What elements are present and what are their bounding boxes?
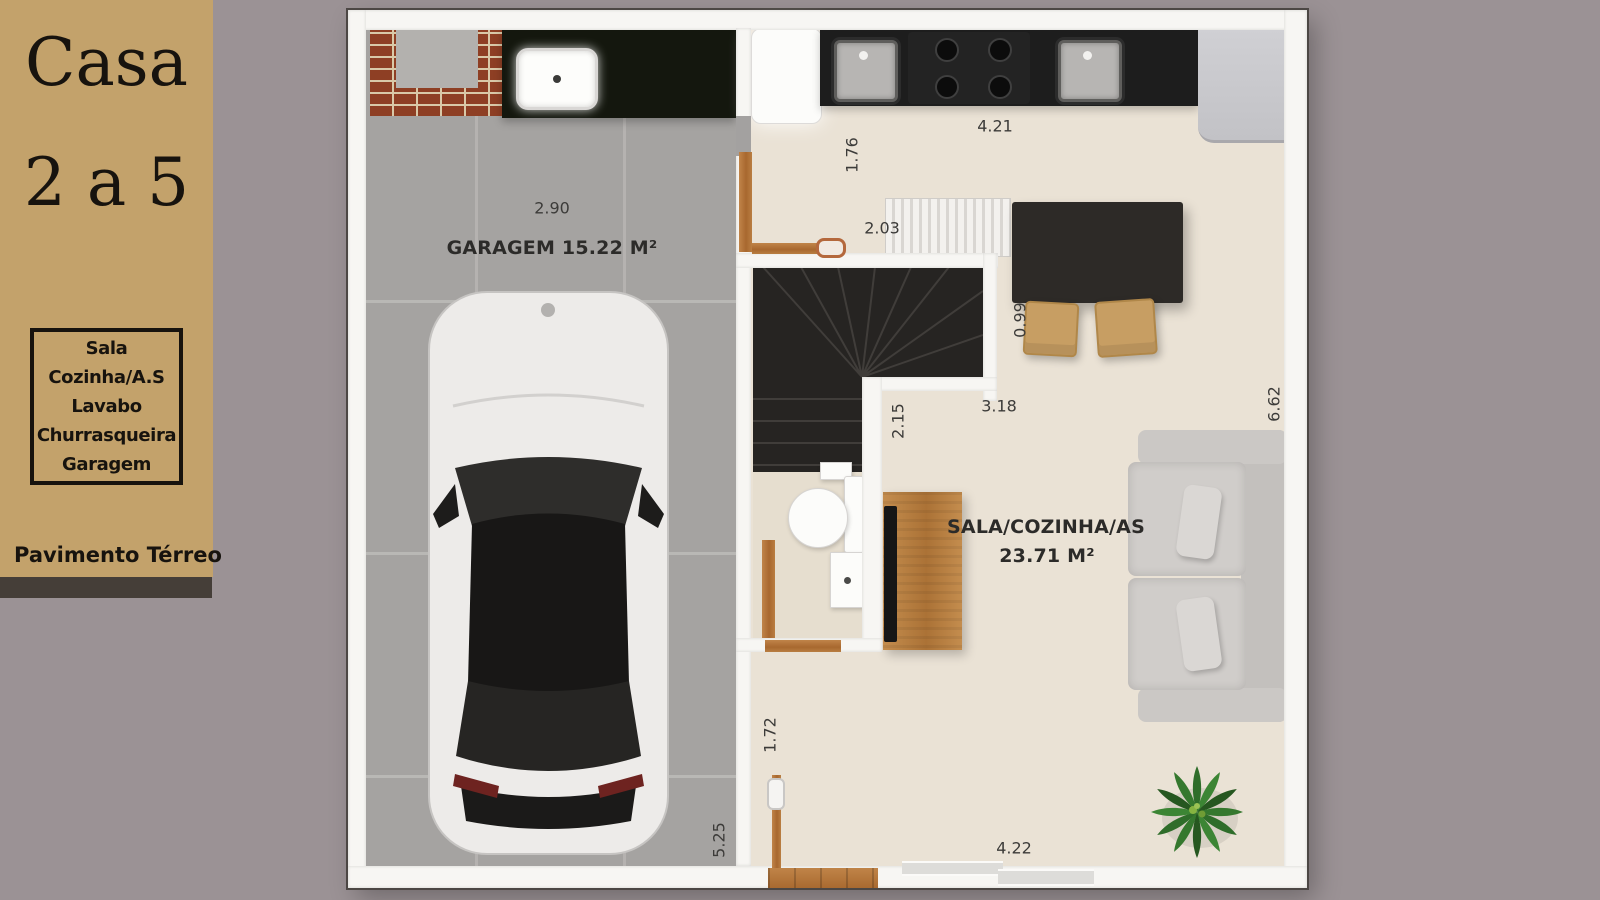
door-leaf-kitchen (739, 152, 752, 252)
dimension-passage: 1.72 (761, 717, 780, 753)
dimension-lavabo-depth: 2.15 (889, 403, 908, 439)
car-top-view (425, 288, 672, 858)
toilet-bowl (788, 488, 848, 548)
project-title-line1: Casa (0, 30, 213, 96)
dimension-garage-width: 2.90 (534, 199, 570, 218)
floor-level-label: Pavimento Térreo (14, 543, 222, 567)
lavabo-sink (830, 552, 864, 608)
burner-icon (935, 38, 959, 62)
plant (1147, 762, 1247, 862)
project-title-line2: 2 a 5 (0, 150, 213, 216)
wall-top (348, 10, 1307, 30)
faucet-icon (1083, 51, 1092, 60)
dimension-kitchen-depth: 1.76 (843, 137, 862, 173)
sofa-seat (1128, 578, 1246, 690)
dimension-stair-width: 2.03 (864, 219, 900, 238)
feature-lavabo: Lavabo (34, 392, 179, 421)
entry-threshold-deck (768, 868, 878, 888)
bbq-sink (516, 48, 598, 110)
feature-churrasqueira: Churrasqueira (34, 421, 179, 450)
doorway-opening (736, 116, 751, 156)
churrasqueira-grill (396, 28, 478, 88)
faucet-icon (859, 51, 868, 60)
feature-sala: Sala (34, 334, 179, 363)
dimension-table-gap: 0.99 (1011, 302, 1030, 338)
kitchen-sink-right (1058, 40, 1122, 102)
door-handle-icon (767, 778, 785, 810)
wall-stair-bottom (862, 377, 997, 391)
refrigerator (751, 28, 822, 124)
sofa-armrest (1138, 430, 1287, 464)
sidebar-accent-band (0, 577, 212, 598)
cooktop (908, 32, 1030, 104)
sala-room-label: SALA/COZINHA/AS (947, 516, 1145, 538)
sliding-window-pane (902, 861, 1003, 876)
corner-cabinet (1198, 28, 1288, 143)
service-area-bench (885, 198, 1011, 257)
dining-chair (1094, 298, 1158, 358)
feature-cozinha: Cozinha/A.S (34, 363, 179, 392)
dimension-kitchen-width: 4.21 (977, 117, 1013, 136)
burner-icon (935, 75, 959, 99)
kitchen-sink-left (834, 40, 898, 102)
floor-plan: GARAGEM 15.22 M² SALA/COZINHA/AS 23.71 M… (348, 10, 1307, 888)
drain-icon (844, 577, 851, 584)
tv-panel (884, 506, 897, 642)
features-box: Sala Cozinha/A.S Lavabo Churrasqueira Ga… (30, 328, 183, 485)
burner-icon (988, 75, 1012, 99)
faucet-icon (553, 75, 561, 83)
sofa-pillow (1175, 596, 1223, 673)
wall-lavabo-right (862, 377, 882, 652)
wall-stair-top (736, 253, 998, 268)
wall-right (1284, 10, 1307, 888)
dining-table (1012, 202, 1183, 303)
door-handle-icon (816, 238, 846, 258)
sofa-pillow (1175, 484, 1223, 561)
sidebar: Casa 2 a 5 (0, 0, 213, 577)
sofa-seat (1128, 462, 1246, 576)
lavabo-wood-shelf (762, 540, 775, 640)
dimension-garage-depth: 5.25 (710, 822, 729, 858)
burner-icon (988, 38, 1012, 62)
wall-left (348, 10, 366, 888)
sala-area-label: 23.71 M² (999, 545, 1095, 567)
sofa-armrest (1138, 688, 1287, 722)
sliding-window-pane (998, 869, 1094, 886)
dimension-sala-width: 4.22 (996, 839, 1032, 858)
feature-garagem: Garagem (34, 450, 179, 479)
garage-room-label: GARAGEM 15.22 M² (447, 237, 658, 259)
kitchen-counter (820, 28, 1198, 106)
dimension-sala-depth: 6.62 (1265, 386, 1284, 422)
bbq-granite-counter (502, 28, 736, 118)
lavabo-door-open (765, 640, 841, 652)
dining-chair (1023, 301, 1080, 358)
sofa (1128, 430, 1287, 722)
sofa-backrest (1241, 430, 1287, 722)
dimension-stair-length: 3.18 (981, 397, 1017, 416)
